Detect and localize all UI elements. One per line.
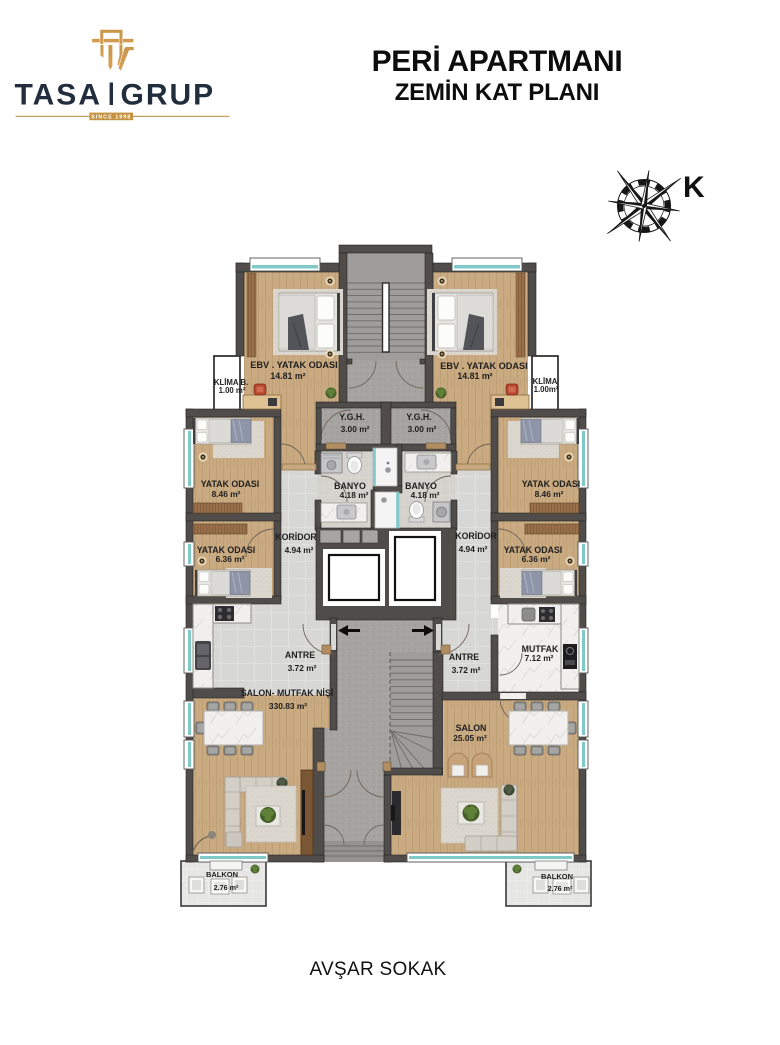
- svg-text:AVŞAR SOKAK: AVŞAR SOKAK: [309, 959, 446, 980]
- svg-text:Y.G.H.: Y.G.H.: [406, 412, 431, 422]
- svg-text:ANTRE: ANTRE: [449, 652, 479, 662]
- svg-text:4.18 m²: 4.18 m²: [340, 490, 369, 500]
- svg-text:3.00 m²: 3.00 m²: [408, 424, 437, 434]
- svg-text:2.76 m²: 2.76 m²: [214, 883, 239, 892]
- svg-text:3.72 m²: 3.72 m²: [288, 663, 317, 673]
- svg-text:14.81 m²: 14.81 m²: [270, 371, 305, 381]
- svg-text:SINCE 1998: SINCE 1998: [91, 114, 131, 120]
- svg-text:14.81 m²: 14.81 m²: [457, 371, 492, 381]
- svg-text:SALON- MUTFAK NİŞİ: SALON- MUTFAK NİŞİ: [241, 688, 333, 698]
- svg-text:BALKON: BALKON: [541, 872, 573, 881]
- svg-text:KORİDOR: KORİDOR: [275, 532, 317, 542]
- svg-text:GRUP: GRUP: [121, 79, 216, 112]
- svg-text:1.00 m²: 1.00 m²: [219, 386, 246, 395]
- svg-text:YATAK ODASI: YATAK ODASI: [201, 479, 260, 489]
- svg-text:SALON: SALON: [456, 723, 487, 733]
- svg-text:2.76 m²: 2.76 m²: [548, 884, 573, 893]
- svg-text:4.94 m²: 4.94 m²: [459, 544, 488, 554]
- svg-text:EBV . YATAK ODASI: EBV . YATAK ODASI: [440, 361, 527, 371]
- svg-text:YATAK ODASI: YATAK ODASI: [522, 479, 581, 489]
- svg-text:1.00m²: 1.00m²: [534, 385, 559, 394]
- svg-text:ANTRE: ANTRE: [285, 650, 315, 660]
- svg-text:7.12 m²: 7.12 m²: [525, 653, 554, 663]
- svg-text:K: K: [683, 171, 705, 204]
- svg-text:BALKON: BALKON: [206, 870, 238, 879]
- svg-text:3.00 m²: 3.00 m²: [341, 424, 370, 434]
- svg-text:KORİDOR: KORİDOR: [455, 531, 497, 541]
- svg-text:6.36 m²: 6.36 m²: [216, 554, 245, 564]
- svg-text:EBV . YATAK ODASI: EBV . YATAK ODASI: [250, 360, 337, 370]
- svg-text:ZEMİN KAT PLANI: ZEMİN KAT PLANI: [395, 79, 600, 106]
- svg-text:25.05 m²: 25.05 m²: [453, 733, 487, 743]
- svg-text:TASA: TASA: [15, 79, 102, 112]
- svg-text:Y.G.H.: Y.G.H.: [339, 412, 364, 422]
- svg-text:PERİ APARTMANI: PERİ APARTMANI: [372, 45, 623, 78]
- svg-text:3.72 m²: 3.72 m²: [452, 665, 481, 675]
- svg-text:330.83 m²: 330.83 m²: [269, 701, 307, 711]
- svg-text:6.36 m²: 6.36 m²: [522, 554, 551, 564]
- svg-text:4.18 m²: 4.18 m²: [411, 490, 440, 500]
- svg-text:4.94 m²: 4.94 m²: [285, 545, 314, 555]
- svg-text:8.46 m²: 8.46 m²: [212, 489, 241, 499]
- svg-text:8.46 m²: 8.46 m²: [535, 489, 564, 499]
